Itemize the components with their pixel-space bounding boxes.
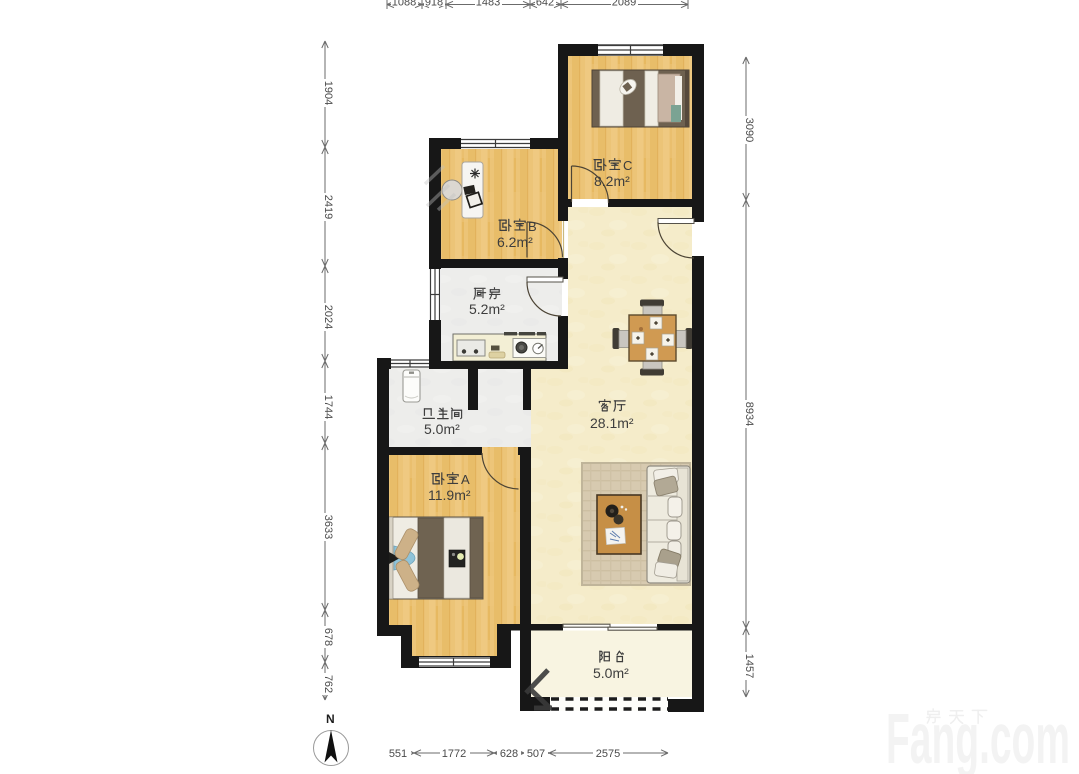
svg-text:1772: 1772: [442, 748, 466, 760]
svg-text:8934: 8934: [743, 402, 755, 426]
svg-text:3090: 3090: [743, 118, 755, 142]
svg-text:6.2m²: 6.2m²: [497, 234, 533, 250]
svg-text:3633: 3633: [322, 515, 334, 539]
svg-text:2419: 2419: [322, 195, 334, 219]
svg-text:B: B: [528, 219, 537, 234]
svg-text:918: 918: [425, 0, 443, 9]
svg-text:2024: 2024: [322, 305, 334, 329]
svg-text:28.1m²: 28.1m²: [590, 415, 634, 431]
svg-text:C: C: [623, 158, 632, 173]
svg-text:5.0m²: 5.0m²: [593, 665, 629, 681]
svg-text:N: N: [326, 712, 335, 726]
svg-text:678: 678: [322, 628, 334, 646]
svg-text:1457: 1457: [743, 654, 755, 678]
svg-text:A: A: [461, 472, 470, 487]
svg-text:628: 628: [500, 748, 518, 760]
svg-text:642: 642: [536, 0, 554, 9]
svg-text:11.9m²: 11.9m²: [428, 487, 471, 503]
svg-text:1904: 1904: [322, 81, 334, 105]
svg-text:Fang.com: Fang.com: [886, 700, 1070, 774]
svg-text:2575: 2575: [596, 748, 620, 760]
svg-text:5.0m²: 5.0m²: [424, 421, 460, 437]
svg-text:8.2m²: 8.2m²: [594, 173, 630, 189]
svg-text:551: 551: [389, 748, 407, 760]
svg-text:5.2m²: 5.2m²: [469, 301, 505, 317]
svg-text:2089: 2089: [612, 0, 636, 9]
svg-text:1483: 1483: [476, 0, 500, 9]
svg-text:507: 507: [527, 748, 545, 760]
svg-text:1744: 1744: [322, 395, 334, 419]
svg-text:1088: 1088: [392, 0, 416, 9]
svg-text:762: 762: [322, 675, 334, 693]
